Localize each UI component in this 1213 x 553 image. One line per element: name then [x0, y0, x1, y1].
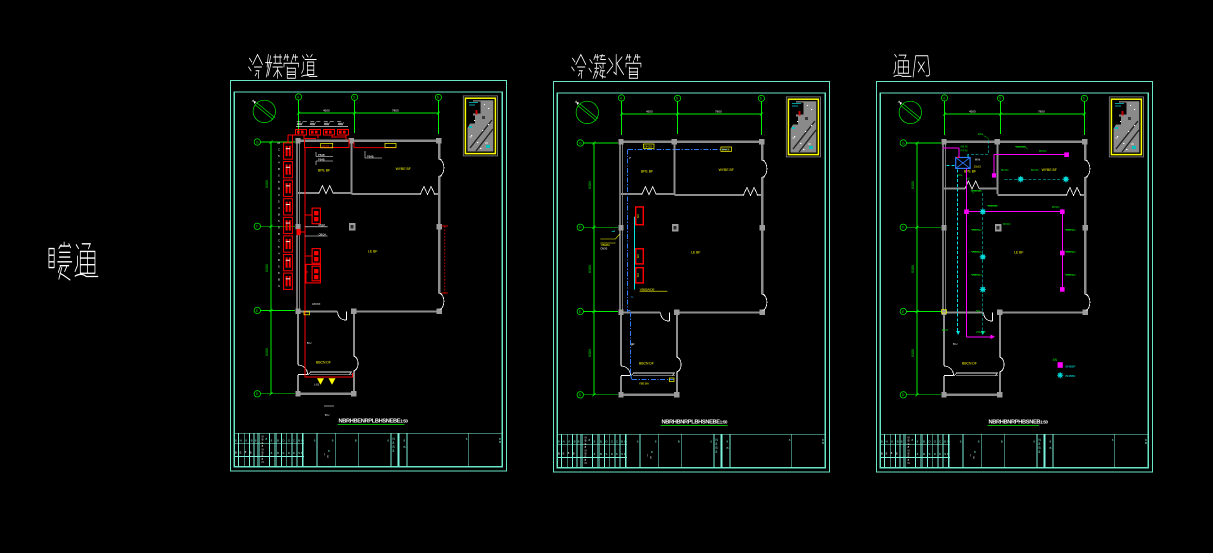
svg-text:C: C [278, 239, 280, 243]
svg-text:5: 5 [278, 245, 280, 249]
svg-text:B: B [278, 258, 280, 262]
svg-text:P: P [629, 156, 631, 160]
svg-text:B: B [278, 213, 280, 217]
svg-text:PB4B: PB4B [318, 153, 325, 157]
svg-text:DN30: DN30 [600, 246, 607, 250]
svg-text:500: 500 [976, 310, 981, 313]
svg-text:NBRHBNRPLBHSNEBE1:50: NBRHBNRPLBHSNEBE1:50 [661, 419, 728, 425]
svg-text:B: B [278, 278, 280, 282]
svg-text:BF250: BF250 [1001, 169, 1009, 172]
svg-text:C: C [278, 148, 280, 152]
svg-text:M: M [277, 141, 280, 145]
svg-text:B.U: B.U [325, 413, 329, 417]
svg-text:bM: bM [966, 177, 969, 180]
svg-text:5: 5 [278, 219, 280, 223]
svg-text:BNBBF: BNBBF [1065, 374, 1075, 378]
svg-text:YBEBA: YBEBA [600, 242, 609, 246]
svg-text:FP1: FP1 [636, 254, 639, 259]
svg-text:BF25: BF25 [942, 329, 949, 332]
svg-text:5: 5 [278, 174, 280, 178]
svg-text:cKa: cKa [958, 174, 963, 177]
svg-text:B: B [278, 167, 280, 171]
svg-text:FP1: FP1 [636, 214, 639, 219]
svg-text:PB4B: PB4B [367, 155, 374, 159]
svg-text:RF01: RF01 [322, 144, 330, 148]
svg-text:YBE BA: YBE BA [638, 381, 648, 385]
svg-text:MQM: MQM [318, 224, 324, 228]
svg-text:4: 4 [278, 206, 280, 210]
svg-text:FP1: FP1 [636, 273, 639, 278]
svg-text:YL: YL [630, 295, 634, 299]
svg-text:BF500: BF500 [1039, 150, 1047, 153]
svg-text:5: 5 [278, 265, 280, 269]
svg-text:5: 5 [278, 154, 280, 158]
svg-text:L-01: L-01 [314, 383, 320, 387]
svg-text:NBRHBENRPLBHSNEBE1:50: NBRHBENRPLBHSNEBE1:50 [338, 419, 408, 425]
svg-text:4XXXX: 4XXXX [312, 302, 321, 306]
svg-text:BN: BN [1052, 358, 1057, 362]
svg-text:BF250: BF250 [1031, 169, 1039, 172]
svg-text:B: B [278, 232, 280, 236]
svg-text:8: 8 [278, 271, 280, 275]
svg-text:BNBBF: BNBBF [1065, 364, 1075, 368]
svg-text:15x15: 15x15 [973, 164, 981, 168]
svg-text:1F: 1F [630, 342, 633, 346]
svg-text:NBRHBNRPHBSNEB1:50: NBRHBNRPHBSNEB1:50 [988, 419, 1048, 425]
svg-text:MVd: MVd [974, 157, 980, 161]
svg-text:5: 5 [278, 200, 280, 204]
svg-text:4: 4 [278, 252, 280, 256]
svg-text:4: 4 [278, 161, 280, 165]
svg-text:QBQA: QBQA [318, 233, 326, 237]
svg-text:PIP BI: PIP BI [960, 149, 967, 152]
svg-text:C: C [278, 193, 280, 197]
svg-text:250x120: 250x120 [976, 331, 986, 334]
svg-text:BF500: BF500 [1052, 206, 1060, 209]
svg-text:8: 8 [278, 180, 280, 184]
svg-text:DN25: DN25 [722, 147, 730, 151]
svg-text:C: C [278, 284, 280, 288]
svg-text:B: B [278, 187, 280, 191]
svg-text:BF500: BF500 [1003, 223, 1011, 226]
svg-text:PB4B: PB4B [318, 158, 325, 162]
svg-text:DN25: DN25 [644, 144, 652, 148]
svg-text:MB MI: MB MI [960, 145, 968, 148]
svg-text:YBEBAIDE: YBEBAIDE [639, 287, 654, 291]
svg-text:bMal: bMal [977, 133, 983, 136]
